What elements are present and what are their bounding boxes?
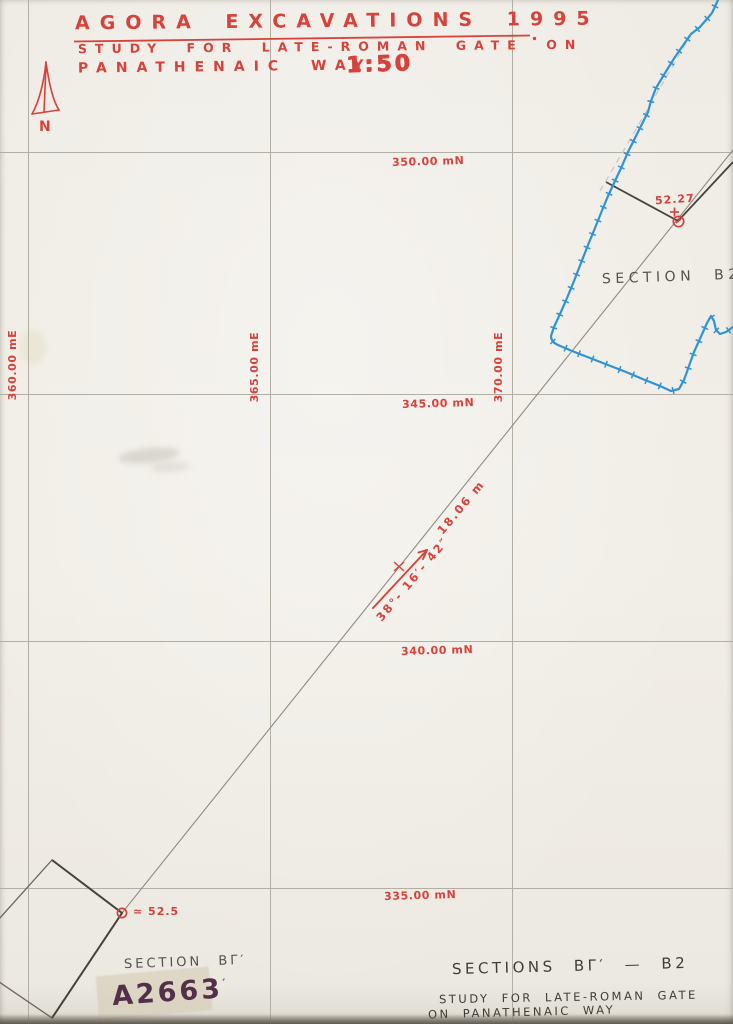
drawing-scale: 1:50 xyxy=(346,52,414,79)
red-ink-marks xyxy=(32,36,684,918)
survey-diagonal-line xyxy=(122,150,733,913)
blue-pen-tick: ′ xyxy=(222,976,229,990)
grid-lines xyxy=(0,0,733,1024)
north-arrow-icon xyxy=(32,62,59,114)
section-b2-outline xyxy=(550,0,733,394)
sheet-title: AGORA EXCAVATIONS 1995 xyxy=(75,9,600,34)
grid-label-350mN: 350.00 mN xyxy=(392,155,465,169)
trench-hatch-ticks xyxy=(550,5,730,394)
scanned-drawing-sheet: AGORA EXCAVATIONS 1995 STUDY FOR LATE-RO… xyxy=(0,0,733,1024)
grid-label-370mE: 370.00 mE xyxy=(493,329,505,405)
grid-label-360mE: 360.00 mE xyxy=(7,327,19,403)
grid-label-345mN: 345.00 mN xyxy=(402,397,475,411)
north-label: N xyxy=(39,120,51,135)
grid-label-340mN: 340.00 mN xyxy=(401,644,474,658)
section-b2-sightlines xyxy=(606,162,733,221)
scan-edge-shadow xyxy=(0,1014,733,1024)
elevation-label-bg: ≃ 52.5 xyxy=(133,906,179,918)
grid-label-335mN: 335.00 mN xyxy=(384,889,457,903)
drawing-linework xyxy=(0,0,733,1024)
sheet-subtitle-2: PANATHENAIC WAY xyxy=(78,58,373,76)
grid-label-365mE: 365.00 mE xyxy=(249,329,261,405)
station-x-mark xyxy=(394,562,404,571)
